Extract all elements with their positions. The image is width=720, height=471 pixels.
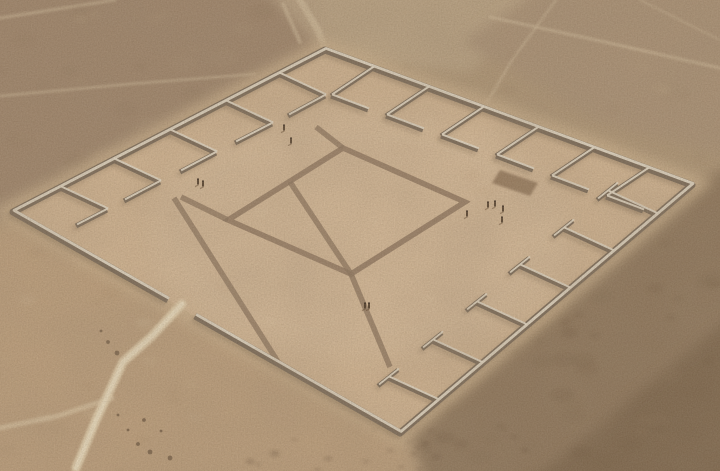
aerial-photograph: [0, 0, 720, 471]
photo-grain: [0, 0, 720, 471]
scene-canvas: [0, 0, 720, 471]
